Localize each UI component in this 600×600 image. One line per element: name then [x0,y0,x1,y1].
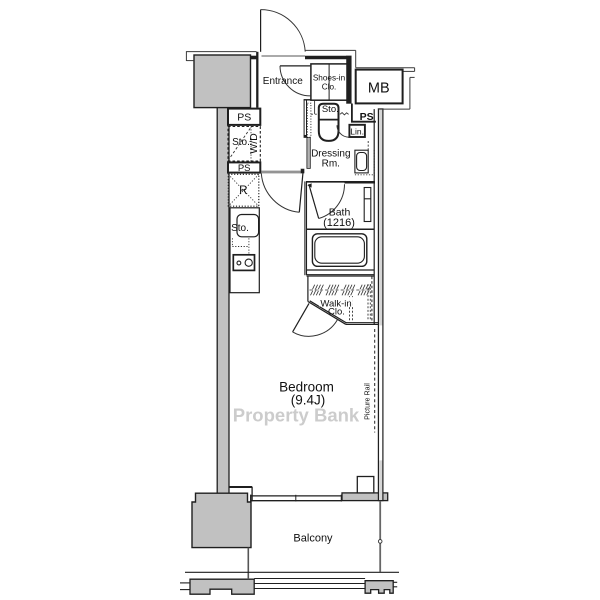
svg-text:Sto.: Sto. [322,104,339,115]
svg-text:PS: PS [360,111,374,123]
svg-text:Rm.: Rm. [322,158,340,169]
svg-text:Shoes-in: Shoes-in [313,73,346,82]
svg-text:(9.4J): (9.4J) [291,393,326,408]
svg-text:Sto.: Sto. [231,223,249,234]
svg-text:(1216): (1216) [323,217,355,229]
svg-text:Picture Rail: Picture Rail [362,383,371,420]
svg-text:Clo.: Clo. [328,306,345,317]
svg-text:Clo.: Clo. [322,82,337,91]
svg-text:Entrance: Entrance [263,76,303,87]
svg-text:Lin.: Lin. [350,126,364,136]
svg-text:PS: PS [238,163,251,174]
svg-text:PS: PS [237,111,251,123]
svg-text:W/D: W/D [248,133,260,154]
svg-text:R: R [239,185,247,197]
svg-text:MB: MB [368,81,390,97]
svg-text:Balcony: Balcony [293,533,333,545]
svg-text:Property Bank: Property Bank [233,405,360,426]
